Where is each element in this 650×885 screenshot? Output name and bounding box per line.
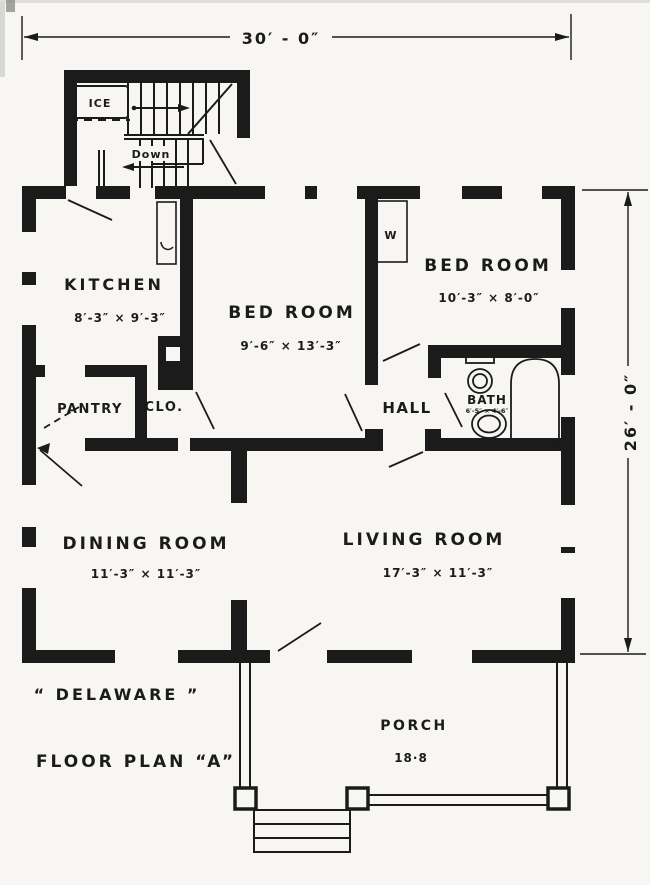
window-left-3 — [22, 485, 36, 527]
wall-entry-right — [237, 70, 250, 138]
overall-depth-dimension: 26′ - 0″ — [621, 373, 640, 452]
front-door-opening — [270, 650, 327, 663]
chimney-mass — [158, 336, 193, 390]
chimney-flue-hole — [166, 347, 180, 361]
bath-label: BATH — [467, 393, 507, 407]
bedroom2-dims: 10′-3″ × 8′-0″ — [438, 291, 539, 305]
wall-stub-hall-left — [365, 429, 383, 438]
porch-label: PORCH — [380, 718, 447, 734]
window-top-1 — [265, 186, 305, 199]
wall-mid-left — [85, 438, 178, 451]
window-bottom-living — [412, 650, 472, 663]
window-top-4 — [502, 186, 542, 199]
window-left-4 — [22, 547, 36, 588]
stairs-down-label: Down — [132, 148, 171, 161]
window-right-bath — [561, 375, 575, 417]
scan-edge-artifact — [0, 0, 650, 3]
bedroom1-dims: 9′-6″ × 13′-3″ — [240, 339, 341, 353]
wall-bath-west — [428, 345, 441, 378]
porch-dims: 18·8 — [394, 751, 428, 765]
bath-dims: 6′-5″ × 4′-6″ — [466, 407, 509, 415]
kitchen-dims: 8′-3″ × 9′-3″ — [74, 311, 166, 325]
dining-room-label: DINING ROOM — [63, 534, 230, 554]
plan-title: FLOOR PLAN “A” — [36, 752, 236, 772]
ice-box-label: ICE — [89, 97, 112, 110]
floor-plan-sheet: Down ICE W — [0, 0, 650, 885]
wall-bedroom2-bottom — [430, 345, 561, 358]
pantry-label: PANTRY — [57, 402, 123, 417]
wall-dining-living-top — [231, 451, 247, 503]
stair-arrow-origin-dot — [132, 106, 137, 111]
window-left-2 — [22, 285, 36, 325]
dining-room-dims: 11′-3″ × 11′-3″ — [91, 567, 202, 581]
kitchen-label: KITCHEN — [64, 275, 164, 294]
window-right-2 — [561, 505, 575, 547]
window-right-1 — [561, 270, 575, 308]
window-left-1 — [22, 232, 36, 272]
wall-dining-living-bottom — [231, 600, 247, 651]
window-right-3 — [561, 553, 575, 598]
wall-stub-hall-right — [425, 429, 441, 438]
rear-door-opening — [66, 186, 96, 199]
wall-bedroom-hall — [365, 199, 378, 385]
overall-width-dimension: 30′ - 0″ — [242, 29, 321, 48]
floor-plan-drawing: Down ICE W — [0, 0, 650, 885]
bedroom2-label: BED ROOM — [424, 256, 552, 276]
scan-mark — [6, 0, 15, 12]
living-room-label: LIVING ROOM — [343, 530, 506, 550]
wall-mid-right — [425, 438, 561, 451]
window-top-3 — [420, 186, 462, 199]
hall-label: HALL — [382, 399, 431, 417]
wall-mid-center — [190, 438, 383, 451]
window-top-2 — [317, 186, 357, 199]
wall-entry-top — [64, 70, 250, 83]
scan-streak — [0, 2, 5, 77]
plan-series-name: “ DELAWARE ” — [34, 685, 201, 704]
wall-kitchen-bedroom — [180, 199, 193, 340]
wardrobe-label: W — [384, 229, 397, 242]
window-bottom-dining — [115, 650, 178, 663]
closet-label: CLO. — [144, 400, 183, 415]
bedroom1-label: BED ROOM — [228, 303, 356, 323]
wall-entry-left — [64, 70, 77, 190]
wall-nub — [36, 365, 45, 377]
living-room-dims: 17′-3″ × 11′-3″ — [383, 566, 494, 580]
wall-kitchen-pantry — [85, 365, 135, 377]
